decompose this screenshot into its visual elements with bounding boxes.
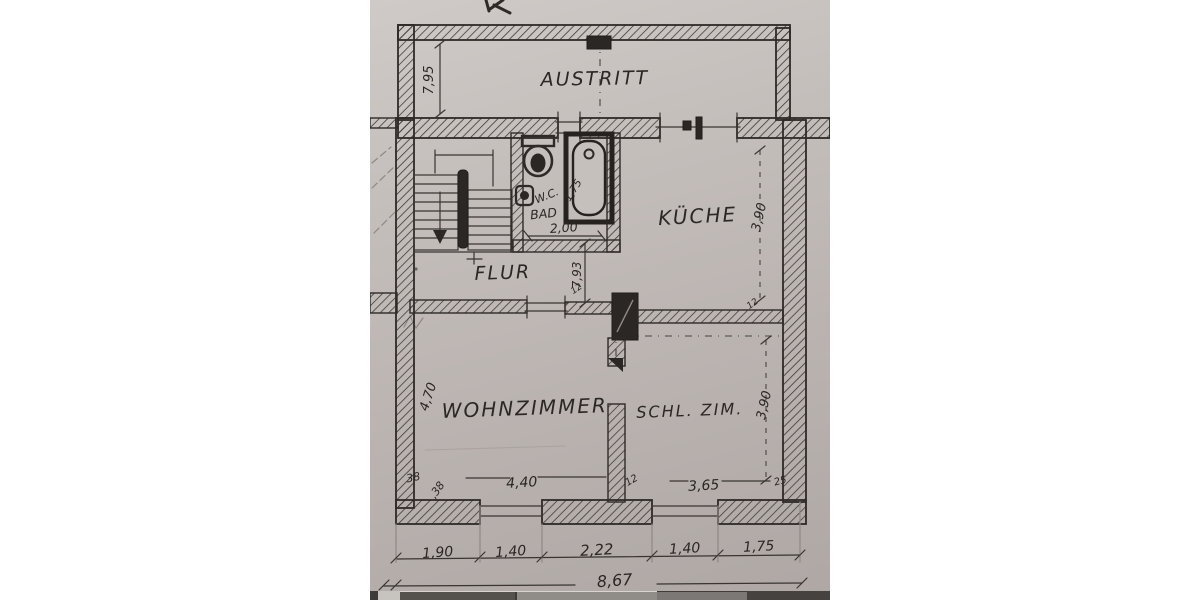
dim-kueche-depth: 3,90 (749, 201, 770, 233)
dim-bottom-3: 2,22 (580, 540, 614, 560)
cutoff-sketch-top (486, 0, 510, 13)
door-leaf (696, 117, 702, 139)
toilet (522, 136, 554, 176)
dim-schlaf-depth: 3,90 (754, 389, 775, 421)
room-divider-wall (608, 338, 625, 502)
balcony-wall-notch (587, 36, 611, 49)
dim-wohn-width: 4,40 (506, 474, 538, 492)
stair-handrail (458, 170, 468, 248)
bathtub (566, 134, 612, 222)
dim-wohn-depth: 4,70 (417, 381, 440, 413)
dim-wall-38: 38 (405, 470, 421, 486)
dim-wall-12c: 12 (623, 473, 640, 489)
room-label-flur: FLUR (474, 261, 531, 285)
dim-bottom-total: 8,67 (596, 570, 634, 591)
dim-schlaf-width: 3,65 (688, 477, 720, 495)
staircase (414, 150, 512, 264)
dim-balcony-length: 7,95 (422, 66, 437, 95)
room-label-wc: W.C. (533, 185, 561, 206)
room-label-schlafzimmer: SCHL. ZIM. (636, 399, 744, 422)
photo-edge-band (370, 591, 830, 600)
page-background: AUSTRITT 7,95 KÜCHE 3,90 FLUR 7,93 W.C. … (0, 0, 1200, 600)
room-label-wohnzimmer: WOHNZIMMER (441, 393, 608, 423)
bottom-wall (396, 500, 806, 524)
paper-crease (425, 446, 566, 450)
dim-bottom-4: 1,40 (669, 540, 701, 558)
bathroom-bottom-wall (513, 240, 620, 252)
dim-bottom-5: 1,75 (743, 538, 775, 556)
right-exterior-wall (783, 120, 806, 502)
stair-direction-arrow (433, 230, 447, 244)
floorplan-drawing: AUSTRITT 7,95 KÜCHE 3,90 FLUR 7,93 W.C. … (370, 0, 830, 600)
dim-wall-38b: ,38 (427, 479, 448, 501)
dim-bad-width: 2,00 (549, 219, 578, 236)
room-label-kueche: KÜCHE (658, 202, 738, 230)
dim-bottom-1: 1,90 (422, 544, 454, 562)
floorplan-photo: AUSTRITT 7,95 KÜCHE 3,90 FLUR 7,93 W.C. … (370, 0, 830, 600)
room-label-austritt: AUSTRITT (538, 67, 649, 91)
main-upper-wall (370, 112, 830, 142)
door-hinge (683, 121, 691, 130)
middle-wall (410, 293, 783, 340)
left-wall-stub (370, 293, 397, 313)
dim-bottom-2: 1,40 (495, 543, 527, 561)
